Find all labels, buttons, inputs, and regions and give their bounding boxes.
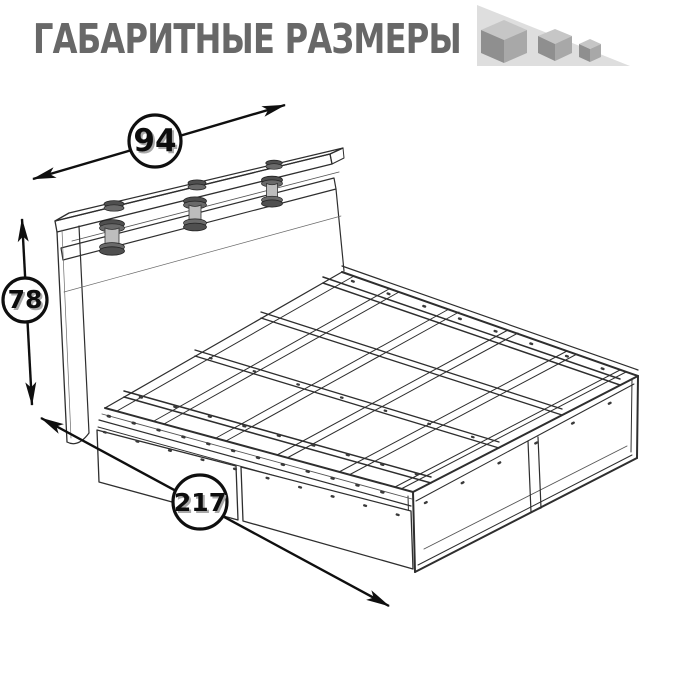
foot-box-center-divider	[528, 437, 541, 512]
header: ГАБАРИТНЫЕ РАЗМЕРЫ	[33, 5, 630, 66]
page-title: ГАБАРИТНЫЕ РАЗМЕРЫ	[33, 15, 461, 63]
foot-box-bottom-edge	[415, 458, 637, 572]
headboard-spool-post-2	[184, 180, 207, 231]
width-value: 94	[133, 123, 176, 159]
height-value: 78	[8, 285, 43, 314]
dimension-height: 78 78	[3, 219, 47, 405]
diagram-canvas: ГАБАРИТНЫЕ РАЗМЕРЫ	[0, 0, 700, 690]
bed-drawing	[55, 148, 638, 572]
foot-box	[408, 376, 638, 572]
foot-box-right-corner	[637, 376, 638, 458]
frame-far-edge	[342, 272, 638, 376]
three-shrinking-cubes-logo	[477, 5, 630, 66]
dimension-width: 94 94	[33, 105, 285, 179]
dimensions-diagram-page: ГАБАРИТНЫЕ РАЗМЕРЫ	[0, 0, 700, 690]
length-value: 217	[174, 488, 226, 517]
drawers	[97, 414, 413, 569]
